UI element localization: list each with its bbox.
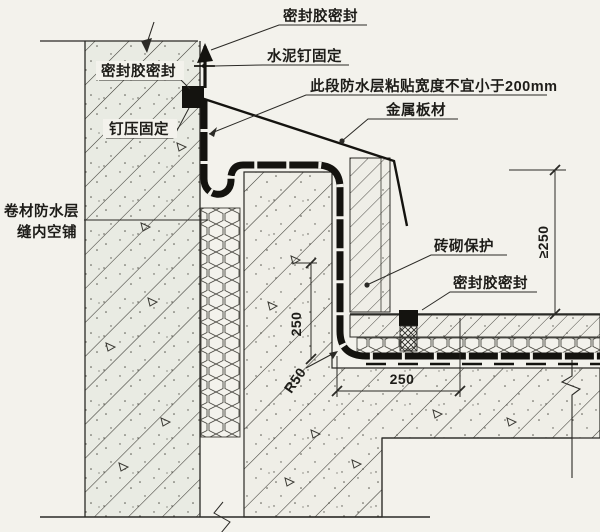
label-nail-press: 钉压固定 (109, 120, 169, 138)
label-brick-protection: 砖砌保护 (434, 237, 494, 255)
construction-detail-page: ≥250 250 R50 250 密封胶密封 水泥钉固定 此段防水层 (0, 0, 600, 532)
dim-upstand-height: 250 (288, 312, 304, 337)
roof-insulation-layer (357, 338, 600, 353)
leader-dot-brick (364, 282, 369, 287)
joint-filler-strip (201, 208, 240, 437)
detail-drawing: ≥250 250 R50 250 密封胶密封 水泥钉固定 此段防水层 (0, 0, 600, 532)
label-sealant-top: 密封胶密封 (283, 7, 358, 25)
brick-protection-upstand (350, 158, 390, 312)
high-wall-section (85, 41, 200, 517)
label-membrane-line2: 缝内空铺 (17, 223, 77, 241)
label-sealant-left: 密封胶密封 (101, 62, 176, 80)
label-membrane-line1: 卷材防水层 (4, 202, 79, 220)
nail-batten-groove-block (182, 86, 204, 108)
leader-dot-metal (339, 138, 344, 143)
label-cement-nail: 水泥钉固定 (267, 47, 342, 65)
dim-protection-width: 250 (390, 371, 415, 387)
label-adhesion-note: 此段防水层粘贴宽度不宜小于200mm (310, 77, 557, 95)
dim-flashing-height: ≥250 (535, 225, 551, 258)
label-sealant-right: 密封胶密封 (453, 274, 528, 292)
roof-sealant-joint (399, 310, 418, 351)
label-metal-sheet: 金属板材 (385, 101, 446, 119)
brick-protection-layer (350, 315, 600, 337)
